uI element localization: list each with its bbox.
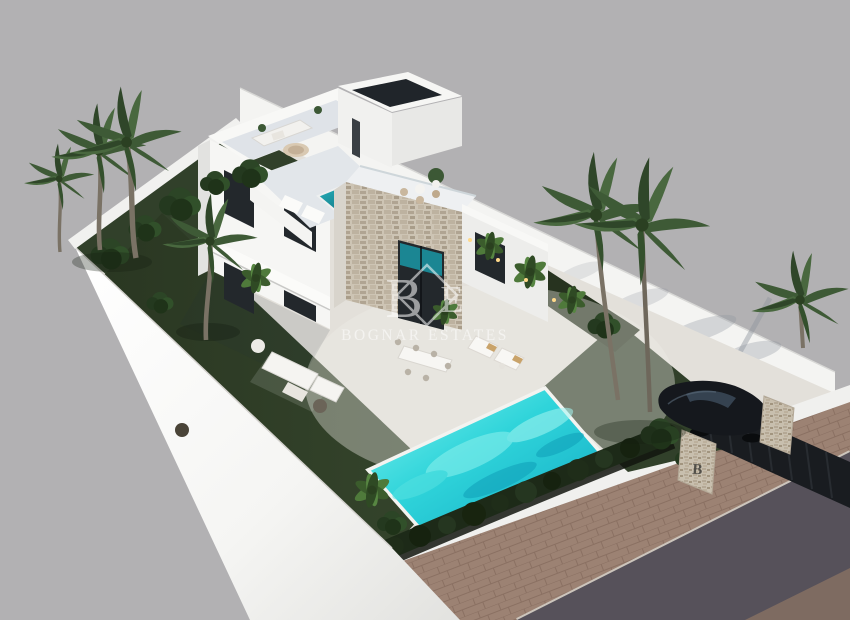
watermark-monogram-secondary: E	[440, 279, 463, 321]
watermark-monogram: B	[385, 268, 422, 330]
watermark-text: BOGNAR ESTATES	[341, 327, 509, 344]
villa-aerial-render: B B E BOGNAR ESTATES	[0, 0, 850, 620]
pillar-sign-letter: B	[692, 462, 703, 479]
bulkhead-door	[352, 118, 360, 158]
render-scene: B B E BOGNAR ESTATES	[0, 0, 850, 620]
